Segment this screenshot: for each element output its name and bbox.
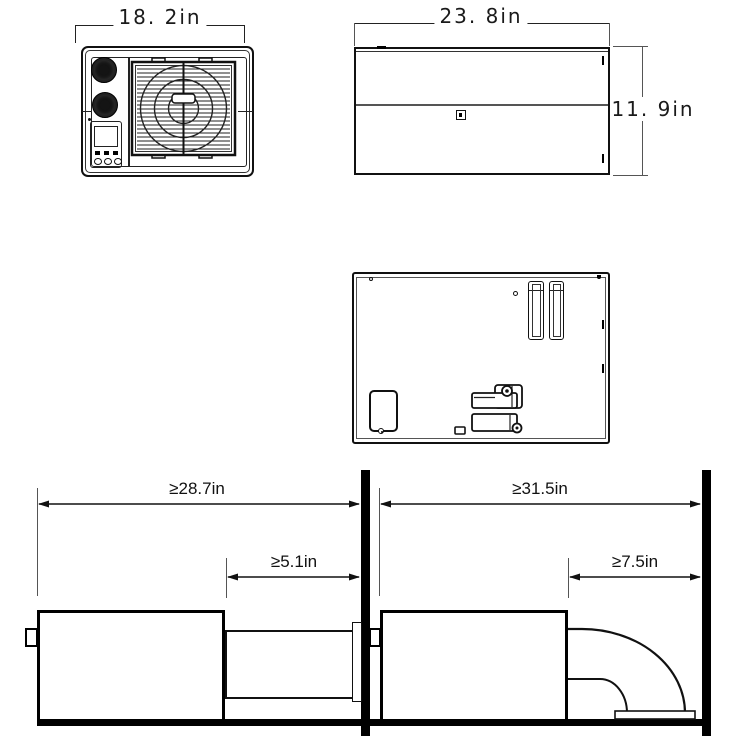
button-oval-2 [104,158,112,165]
top-height-label: 11. 9in [606,97,699,121]
thermostat-knob [91,57,117,83]
top-width-label: 23. 8in [434,4,527,28]
back-slot-right-inner [553,284,561,337]
fitting-small-clip [455,427,465,434]
top-view-body [354,47,610,175]
back-port-screw-dot [381,431,383,433]
straight-duct-clearance-label: ≥5.1in [268,552,320,572]
top-view-inner-top-line [356,51,608,52]
top-width-dim-ext-right [609,23,610,46]
display-screen [94,126,118,147]
straight-duct-wall-plate [352,622,362,702]
button-oval-1 [94,158,102,165]
front-width-dim-tick-left [75,25,76,43]
down-duct-dim-arrow [568,571,702,583]
down-duct-clearance-label: ≥7.5in [609,552,661,572]
down-duct-elbow [566,607,706,725]
straight-duct-tube [225,630,356,699]
top-height-dim-ext-bottom [613,175,648,176]
elbow-outer-curve [568,629,685,713]
top-height-dim-ext-top [613,46,648,47]
front-mid-line-right [238,111,253,112]
top-width-dim-ext-left [354,23,355,46]
top-view-mid-seam [356,104,608,106]
back-side-tick-2 [602,364,604,373]
down-room-dim-arrow [379,498,702,510]
button-square-3 [113,151,118,155]
back-slot-left-inner [532,284,541,337]
straight-unit-body [37,610,225,722]
button-square-2 [104,151,109,155]
down-room-clearance-label: ≥31.5in [509,479,571,499]
fitting-top-pivot-dot [505,389,509,393]
straight-room-clearance-label: ≥28.7in [166,479,228,499]
fitting-bottom-foot-dot [516,427,519,430]
front-mid-line-left [82,111,91,112]
center-wall [361,470,370,736]
fan-speed-knob [92,92,118,118]
technical-drawing-canvas: 18. 2in [0,0,741,740]
top-view-side-tick-2 [602,154,604,163]
button-square-1 [95,151,100,155]
down-unit-body [380,610,568,722]
top-view-latch-notch [459,113,462,117]
top-view-edge-tab [377,46,386,49]
back-corner-mark [597,275,601,279]
straight-room-dim-arrow [37,498,361,510]
fan-grille [130,56,238,162]
front-width-dim-tick-right [244,25,245,43]
button-oval-3 [114,158,122,165]
back-side-tick-1 [602,320,604,329]
back-access-port [369,390,398,432]
straight-duct-dim-arrow [226,571,361,583]
elbow-floor-vent [615,711,695,719]
back-screw-center [513,291,518,296]
elbow-inner-curve [568,679,627,713]
back-pipe-fittings [450,380,530,436]
top-view-side-tick-1 [602,56,604,65]
back-screw-top-left [369,277,373,281]
front-width-label: 18. 2in [113,5,206,29]
grille-handle [172,94,195,103]
